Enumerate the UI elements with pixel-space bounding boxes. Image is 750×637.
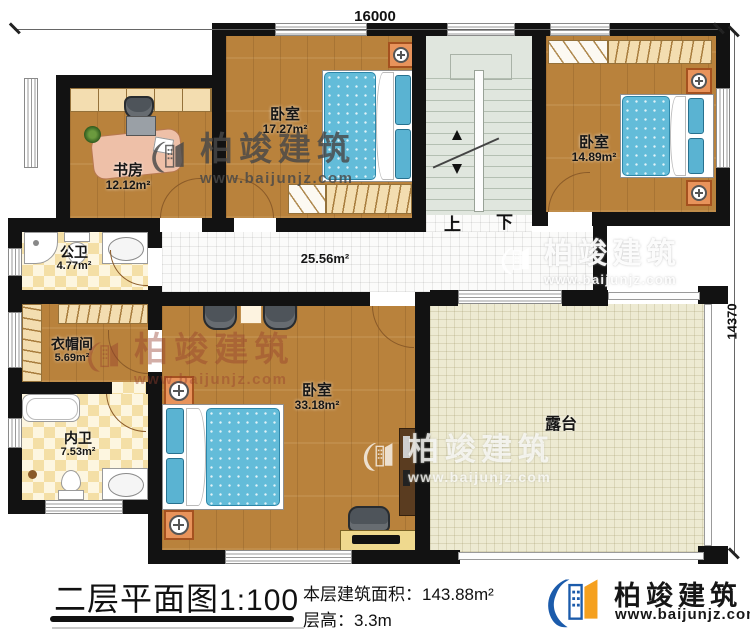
room-area: 12.12m² — [88, 179, 168, 193]
lamp-icon — [393, 47, 409, 63]
wall — [123, 500, 162, 514]
desk-chair — [348, 506, 390, 532]
nightstand — [164, 510, 194, 540]
study-paper — [153, 136, 174, 154]
title-underline-thick — [50, 616, 294, 622]
stair-up-arrow — [452, 130, 462, 140]
wall — [8, 290, 162, 304]
wall — [202, 218, 234, 232]
study-plant — [84, 126, 101, 143]
wardrobe — [608, 40, 712, 64]
stair-down-label: 下 — [496, 208, 513, 233]
window — [24, 78, 38, 168]
window — [225, 550, 352, 564]
wall — [212, 23, 226, 232]
wardrobe — [326, 184, 412, 214]
window — [716, 88, 730, 168]
room-name: 卧室 — [243, 106, 327, 123]
side-table — [240, 304, 262, 324]
room-label-terrace: 露台 — [523, 416, 599, 434]
wall — [352, 550, 460, 564]
wall — [593, 226, 607, 292]
room-label-cloakroom: 衣帽间 5.69m² — [32, 336, 112, 365]
room-area: 5.69m² — [32, 352, 112, 365]
wall — [148, 372, 162, 564]
window — [458, 290, 562, 304]
window — [8, 418, 22, 448]
room-area: 33.18m² — [277, 399, 357, 413]
nightstand — [388, 42, 414, 68]
brand-website: www.baijunjz.com — [615, 606, 750, 623]
wall — [8, 218, 22, 248]
nightstand — [686, 68, 712, 94]
wardrobe-shelf — [548, 40, 608, 64]
bathtub-inner — [26, 398, 78, 420]
lamp-icon — [169, 515, 189, 535]
wall — [8, 448, 22, 500]
room-name: 露台 — [523, 416, 599, 434]
dimension-width-value: 16000 — [340, 8, 410, 25]
wall — [276, 218, 426, 232]
bed-pillow — [166, 458, 184, 504]
wall — [592, 212, 730, 226]
floor-height-label: 层高： — [303, 611, 354, 630]
lamp-icon — [169, 381, 189, 401]
room-area: 17.27m² — [243, 123, 327, 137]
dimension-height-value: 14370 — [725, 292, 740, 352]
floor-plan-page: { "plan": { "dimension_width": "16000", … — [0, 0, 750, 637]
toilet-tank — [58, 490, 84, 500]
wall — [148, 550, 225, 564]
window — [8, 312, 22, 368]
study-laptop — [126, 116, 156, 136]
cloakroom-wardrobe-top — [58, 304, 148, 324]
terrace-railing — [458, 552, 704, 560]
bookshelf-item — [403, 470, 410, 486]
toilet-bowl — [61, 470, 81, 492]
wall — [412, 36, 426, 218]
building-area-value: 143.88m² — [422, 585, 494, 604]
room-name: 卧室 — [277, 382, 357, 399]
plan-scale: 1:100 — [219, 584, 299, 617]
bed-mattress — [324, 72, 376, 180]
room-label-bedroom-top: 卧室 17.27m² — [243, 106, 327, 137]
corridor-area-label: 25.56m² — [287, 252, 363, 267]
nightstand — [686, 180, 712, 206]
floor-height-line: 层高：3.3m — [303, 606, 392, 631]
lamp-icon — [691, 185, 707, 201]
window — [45, 500, 123, 514]
wall — [148, 232, 162, 248]
bed-pillow — [395, 129, 411, 179]
room-area: 14.89m² — [554, 151, 634, 165]
wall — [415, 292, 430, 564]
room-name: 书房 — [88, 162, 168, 179]
tv — [352, 535, 400, 544]
plan-title-text: 二层平面图 — [54, 581, 219, 617]
toilet-tank — [64, 232, 90, 242]
floor-height-value: 3.3m — [354, 611, 392, 630]
room-name: 公卫 — [34, 244, 114, 260]
room-area: 4.77m² — [34, 260, 114, 273]
room-name: 内卫 — [38, 430, 118, 446]
building-area-line: 本层建筑面积：143.88m² — [303, 580, 494, 605]
window — [8, 248, 22, 276]
terrace-railing — [608, 292, 700, 300]
stair-down-arrow — [452, 164, 462, 174]
brand-logo-icon — [540, 572, 612, 628]
building-area-label: 本层建筑面积： — [303, 585, 422, 604]
sink — [108, 473, 144, 497]
bed-mattress — [206, 408, 280, 506]
wall — [430, 290, 458, 306]
room-area: 7.53m² — [38, 446, 118, 459]
brand-logo — [540, 572, 612, 633]
wall — [146, 382, 162, 394]
wall — [162, 292, 370, 306]
bed-blanket — [670, 96, 686, 176]
title-underline-thin — [52, 627, 304, 629]
room-name: 衣帽间 — [32, 336, 112, 352]
wall — [8, 218, 160, 232]
plan-title: 二层平面图1:100 — [54, 574, 299, 620]
wall — [56, 75, 226, 88]
wardrobe-shelf — [288, 184, 326, 214]
room-area: 25.56m² — [287, 252, 363, 267]
corridor-floor — [162, 232, 593, 292]
dimension-line-top — [14, 29, 722, 30]
stair-rail — [474, 70, 484, 212]
corridor-floor-stairfront — [426, 215, 532, 232]
terrace-railing — [704, 304, 712, 546]
bed-pillow — [166, 408, 184, 454]
toilet-brush-icon — [28, 470, 37, 479]
wall — [562, 290, 608, 306]
bed-pillow — [688, 98, 704, 134]
bed-pillow — [688, 138, 704, 174]
room-label-public-bath: 公卫 4.77m² — [34, 244, 114, 273]
wall — [8, 500, 45, 514]
room-label-study: 书房 12.12m² — [88, 162, 168, 193]
room-label-master-bedroom: 卧室 33.18m² — [277, 382, 357, 413]
room-label-bedroom-right: 卧室 14.89m² — [554, 134, 634, 165]
stair-up-label: 上 — [444, 210, 461, 235]
wall — [56, 75, 70, 232]
wall — [8, 382, 112, 394]
nightstand — [164, 376, 194, 406]
bed-blanket — [376, 72, 394, 180]
bed-blanket — [186, 408, 206, 506]
room-name: 卧室 — [554, 134, 634, 151]
bookshelf-item — [403, 436, 410, 458]
wall — [532, 212, 548, 226]
wall — [698, 286, 728, 304]
bed-pillow — [395, 75, 411, 125]
lamp-icon — [691, 73, 707, 89]
wall — [532, 23, 546, 226]
room-label-ensuite: 内卫 7.53m² — [38, 430, 118, 459]
